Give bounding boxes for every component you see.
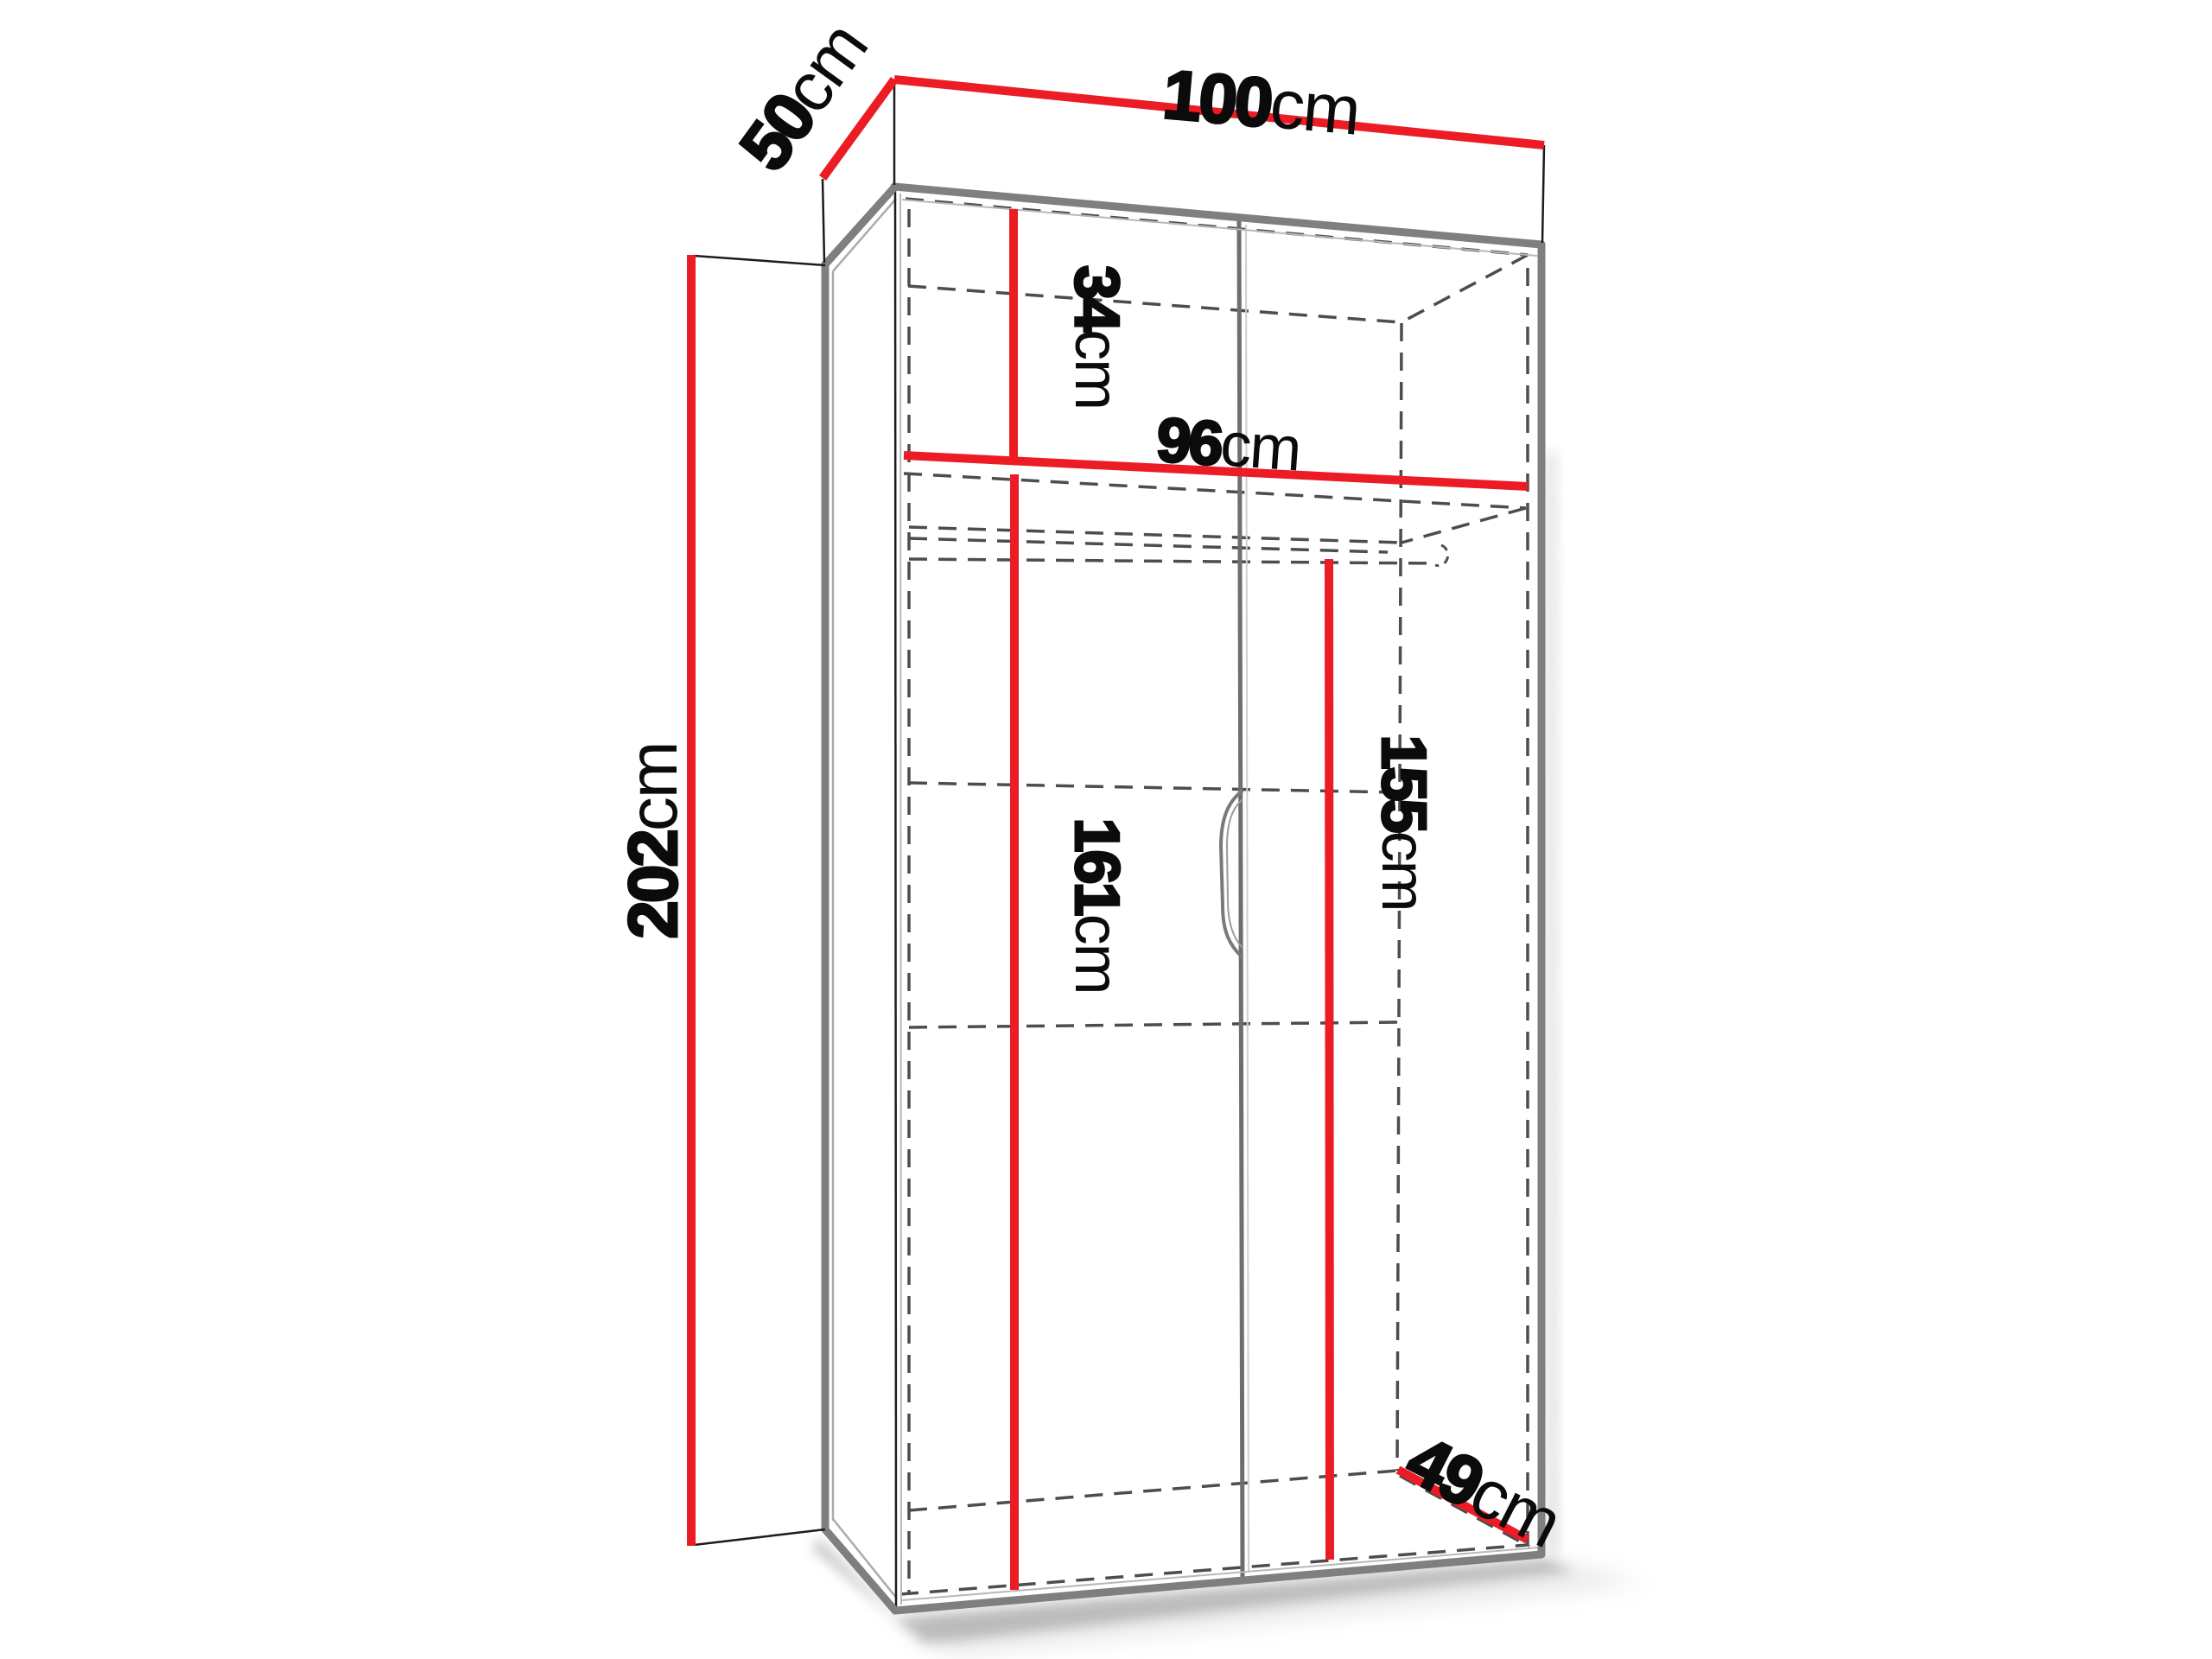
side-panel-face xyxy=(825,188,895,1611)
height-top-tick xyxy=(694,256,825,265)
shadow-right xyxy=(1546,449,1559,1555)
label-overall-height: 202cm xyxy=(614,742,691,938)
label-top-depth: 50cm xyxy=(725,10,881,184)
label-interior-width: 96cm xyxy=(1154,405,1302,484)
front-left-corner-line xyxy=(895,188,896,1610)
front-left-corner-line-2 xyxy=(900,194,901,1605)
front-face xyxy=(894,187,1541,1611)
label-lower-section-height: 161cm xyxy=(1062,817,1131,993)
label-top-width: 100cm xyxy=(1160,55,1363,149)
wardrobe-dimension-diagram: 100cm 50cm 202cm 34cm 96cm 161cm 155cm 4… xyxy=(0,0,2212,1659)
label-top-section-height: 34cm xyxy=(1062,265,1131,409)
dimension-line-rail-height xyxy=(1329,559,1330,1560)
depth-lower-tick xyxy=(823,179,824,263)
diagram-canvas: 100cm 50cm 202cm 34cm 96cm 161cm 155cm 4… xyxy=(0,0,2212,1659)
width-right-tick xyxy=(1542,145,1544,243)
height-bottom-tick xyxy=(694,1529,825,1545)
label-rail-height: 155cm xyxy=(1369,734,1438,910)
